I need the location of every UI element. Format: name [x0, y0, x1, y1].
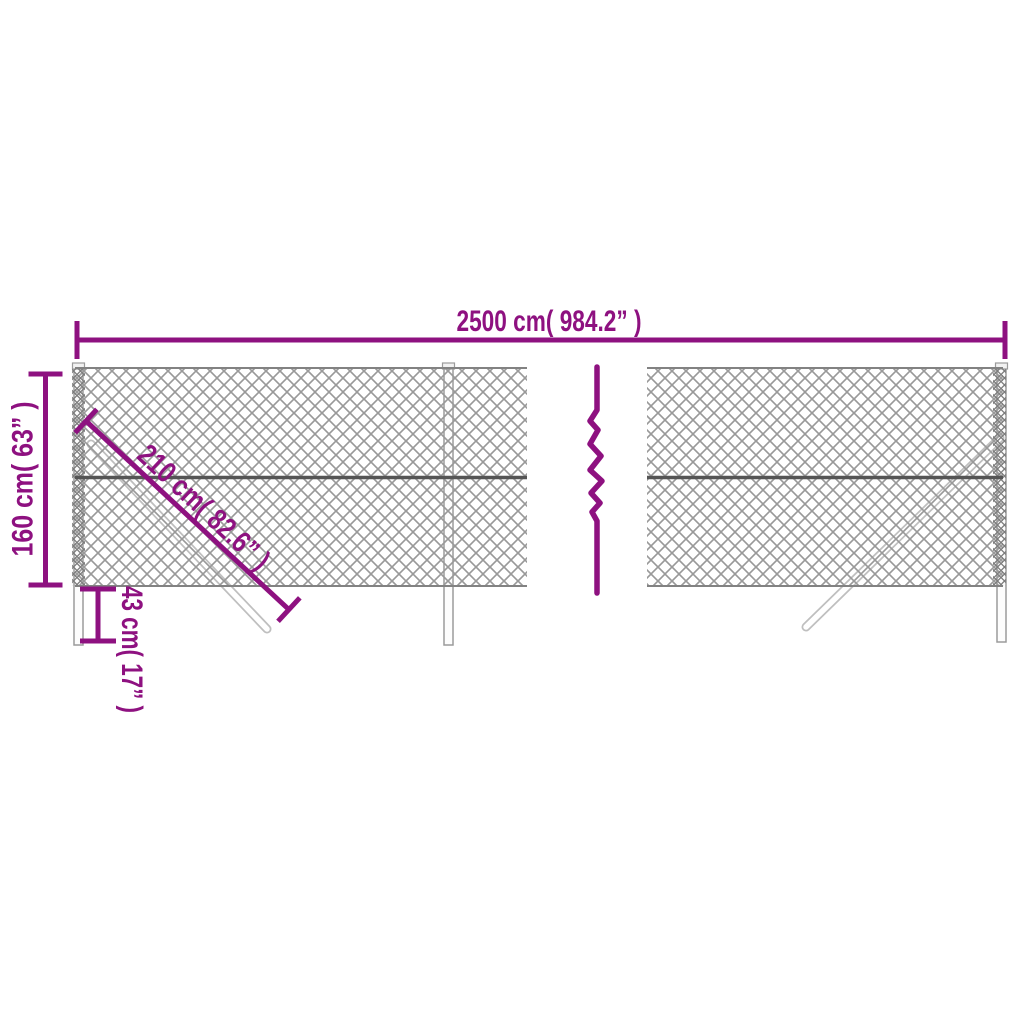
break-zigzag-symbol: [590, 367, 602, 593]
fence-panel-right: [647, 363, 1008, 642]
dimension-width: 2500 cm( 984.2” ): [77, 305, 1005, 359]
dimension-width-label: 2500 cm( 984.2” ): [457, 305, 642, 338]
diagram-canvas: 2500 cm( 984.2” ) 160 cm( 63” ) 210 cm( …: [0, 0, 1024, 1024]
dimension-post-embed-label: 43 cm( 17” ): [115, 586, 148, 713]
dimension-height: 160 cm( 63” ): [7, 374, 63, 585]
fence-dimension-diagram: 2500 cm( 984.2” ) 160 cm( 63” ) 210 cm( …: [0, 0, 1024, 1024]
dimension-height-label: 160 cm( 63” ): [7, 402, 40, 557]
dimension-post-embed: 43 cm( 17” ): [80, 586, 148, 713]
